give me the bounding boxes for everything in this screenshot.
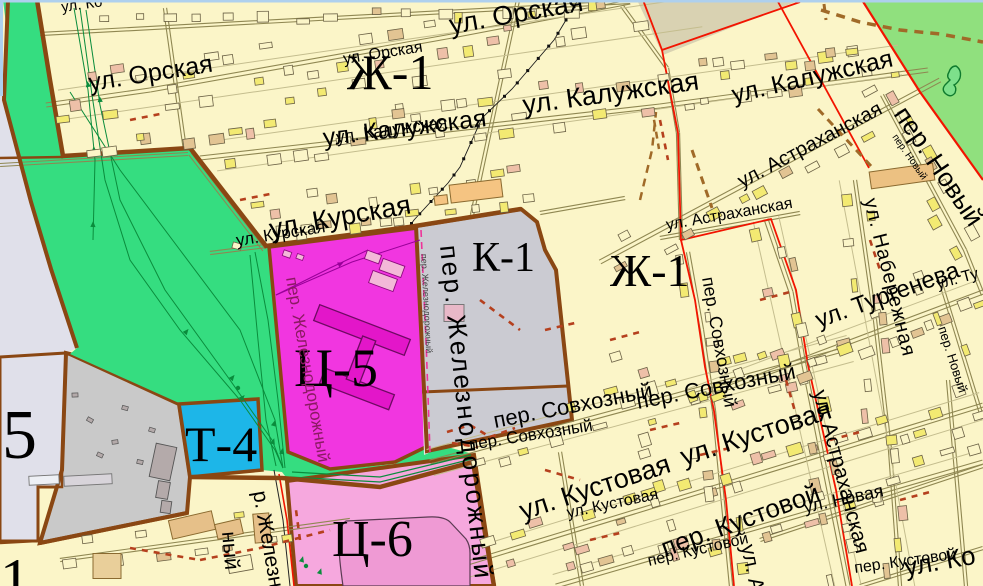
svg-text:К-1: К-1: [472, 235, 535, 281]
svg-text:ный: ный: [217, 530, 243, 570]
svg-text:Ж-1: Ж-1: [610, 245, 690, 296]
svg-text:5: 5: [2, 397, 37, 474]
svg-text:1: 1: [0, 547, 30, 586]
svg-text:Ц-6: Ц-6: [332, 511, 413, 568]
svg-text:Т-4: Т-4: [185, 416, 257, 472]
